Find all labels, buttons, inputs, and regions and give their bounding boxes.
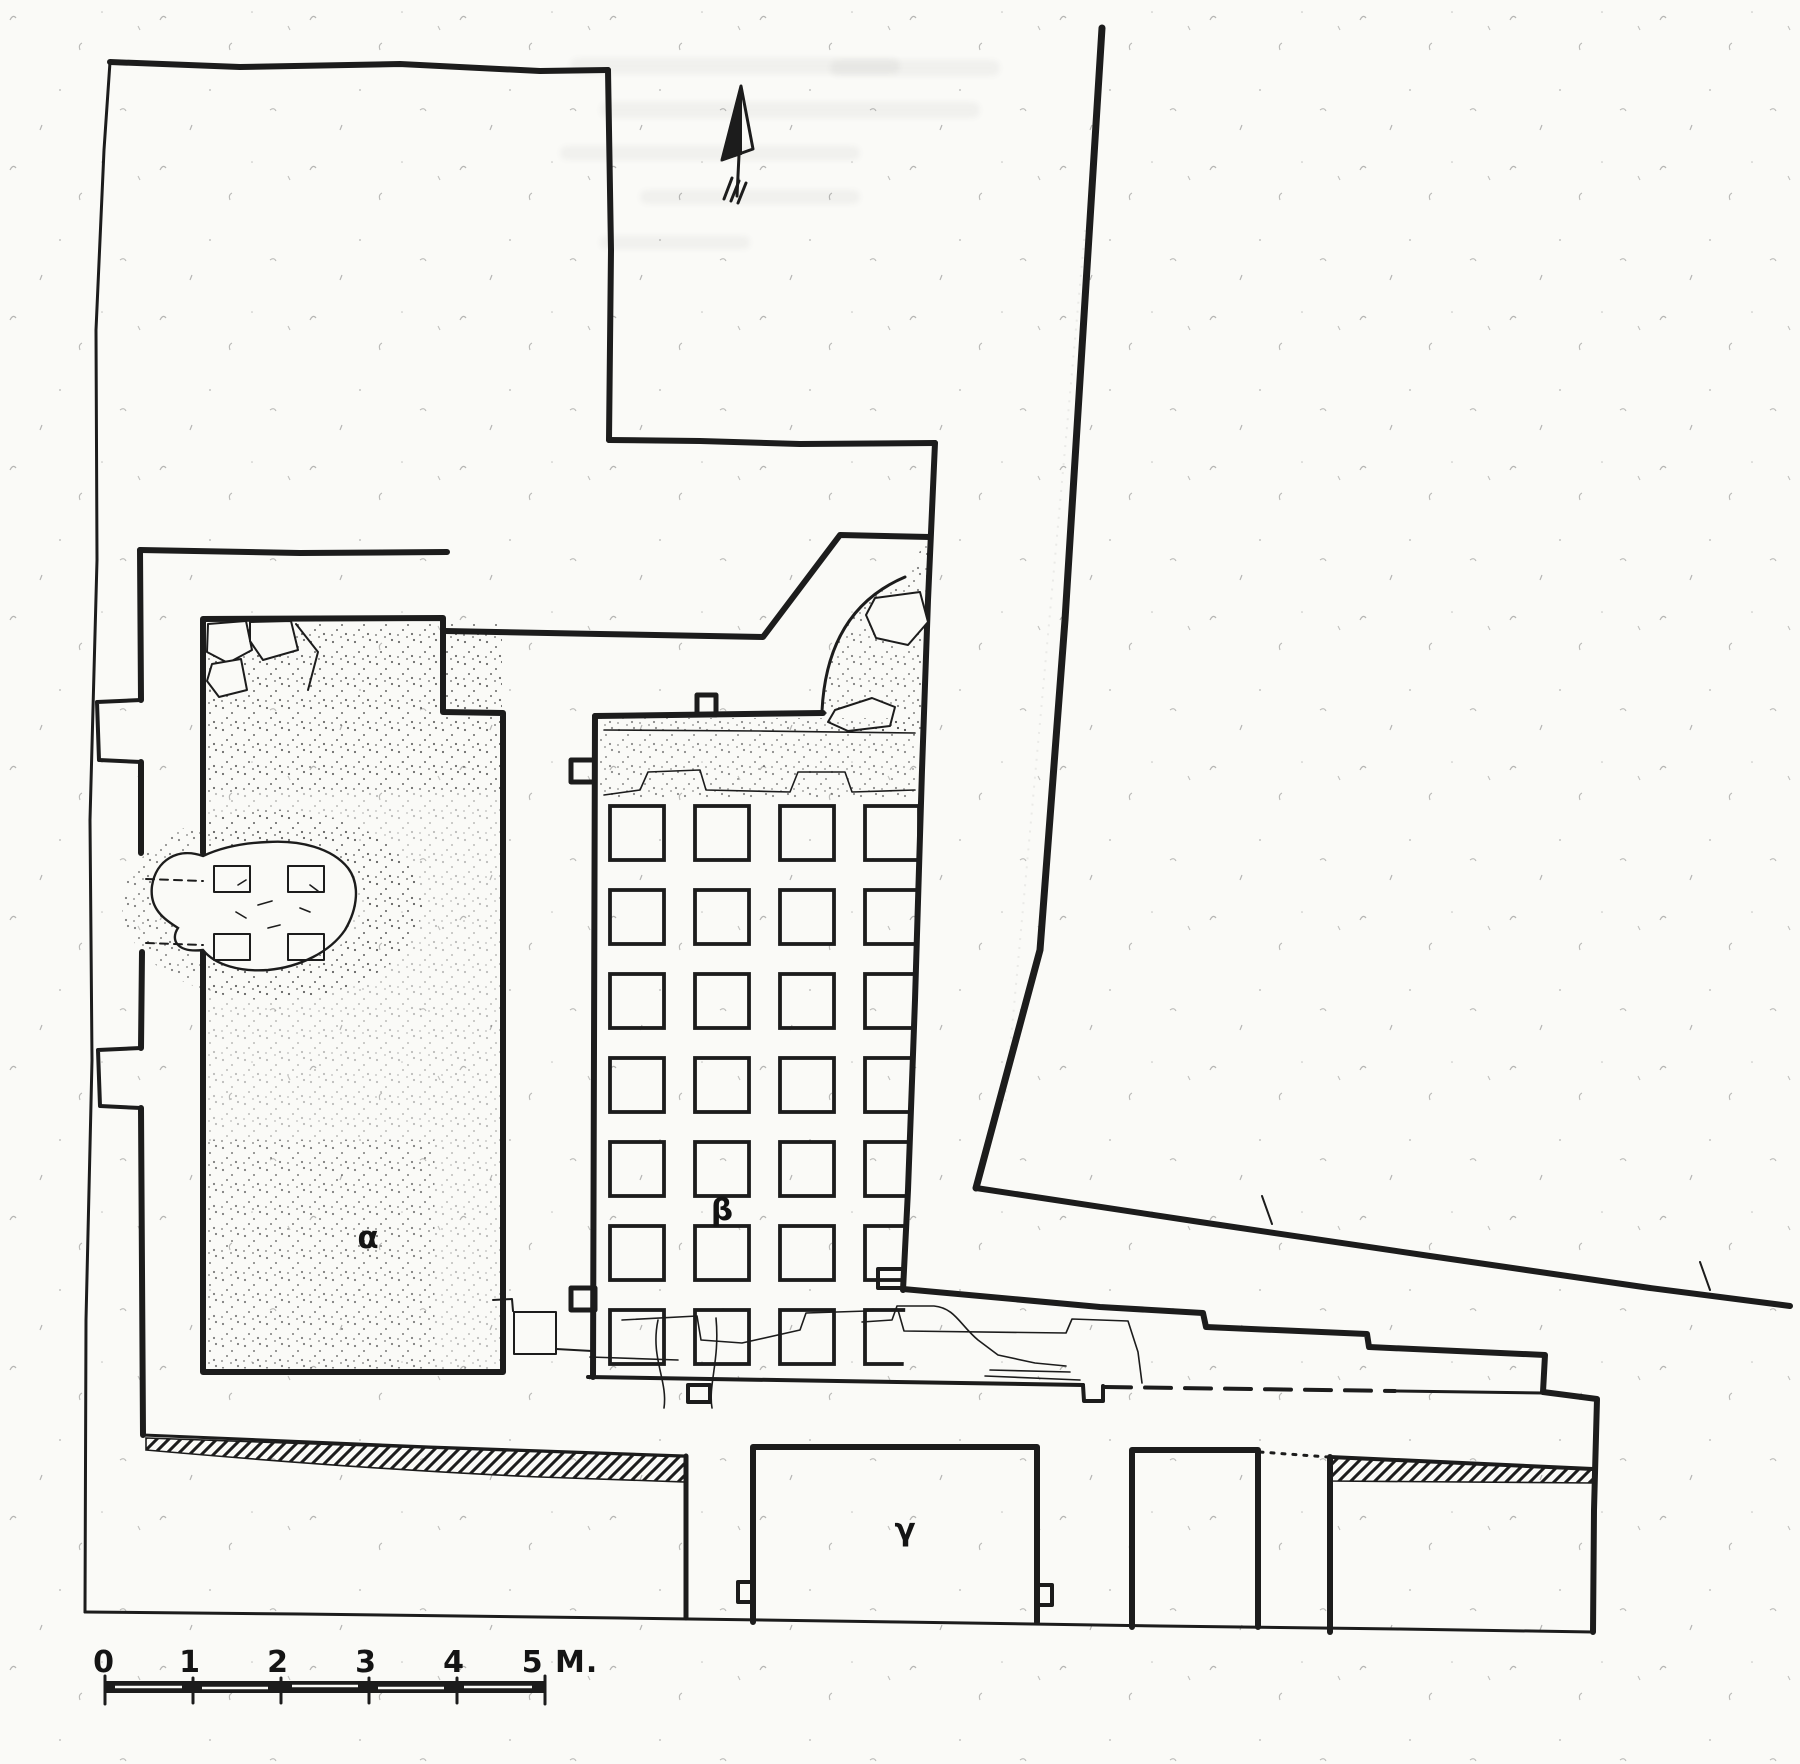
room-label-gamma: γ [894,1512,915,1548]
plan-sheet: α [0,0,1800,1764]
scale-label-5m: 5 M. [522,1645,599,1680]
site-plan: α [0,0,1800,1764]
scale-label-4: 4 [443,1645,465,1680]
scale-label-0: 0 [93,1645,115,1680]
west-precinct-wall [140,550,143,1435]
scale-label-1: 1 [179,1645,201,1680]
beta-west-wall [593,716,595,1377]
scale-label-3: 3 [355,1645,377,1680]
room-label-alpha: α [357,1220,378,1256]
scale-label-2: 2 [267,1645,289,1680]
room-label-beta: β [711,1192,733,1228]
